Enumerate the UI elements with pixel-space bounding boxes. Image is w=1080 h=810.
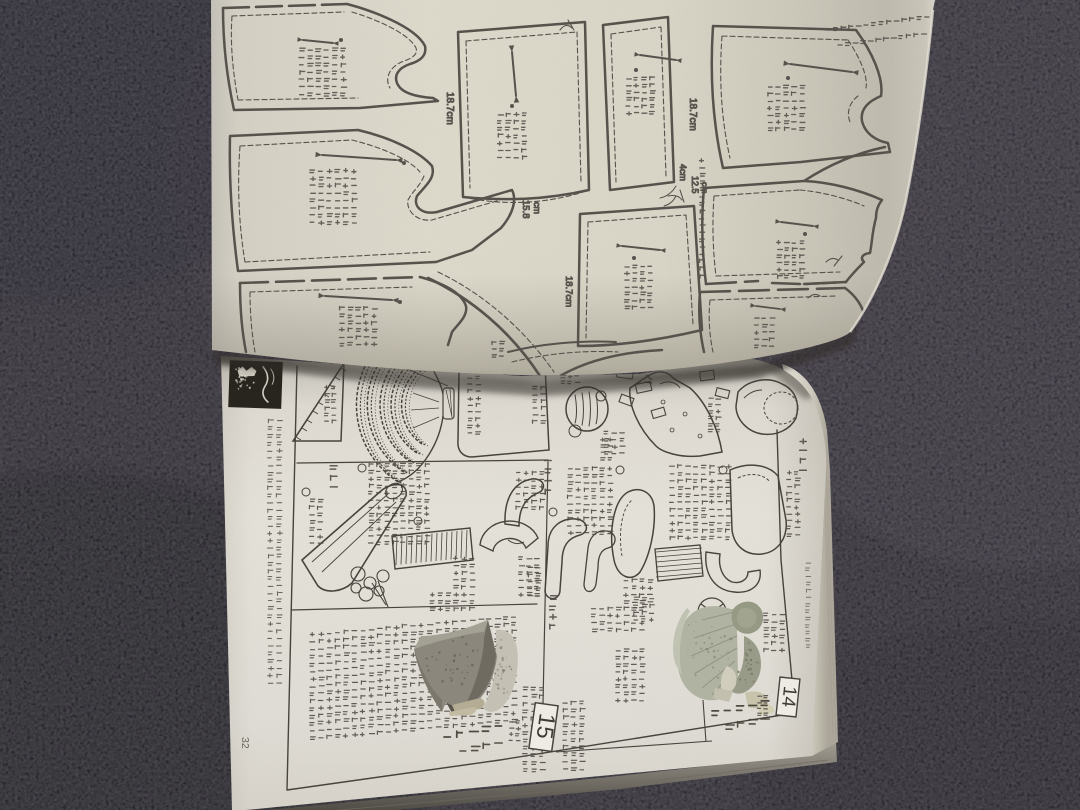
svg-text:14: 14 (777, 685, 800, 709)
svg-text:15.8: 15.8 (520, 200, 531, 219)
svg-text:15: 15 (531, 712, 560, 741)
svg-text:18.7cm: 18.7cm (687, 98, 698, 131)
svg-text:18.7cm: 18.7cm (444, 92, 455, 125)
svg-text:18.7cm: 18.7cm (563, 276, 574, 307)
svg-text:cm: cm (532, 202, 542, 214)
svg-text:32: 32 (239, 737, 251, 749)
svg-text:4cm: 4cm (678, 164, 688, 181)
svg-text:12.5: 12.5 (690, 176, 700, 194)
